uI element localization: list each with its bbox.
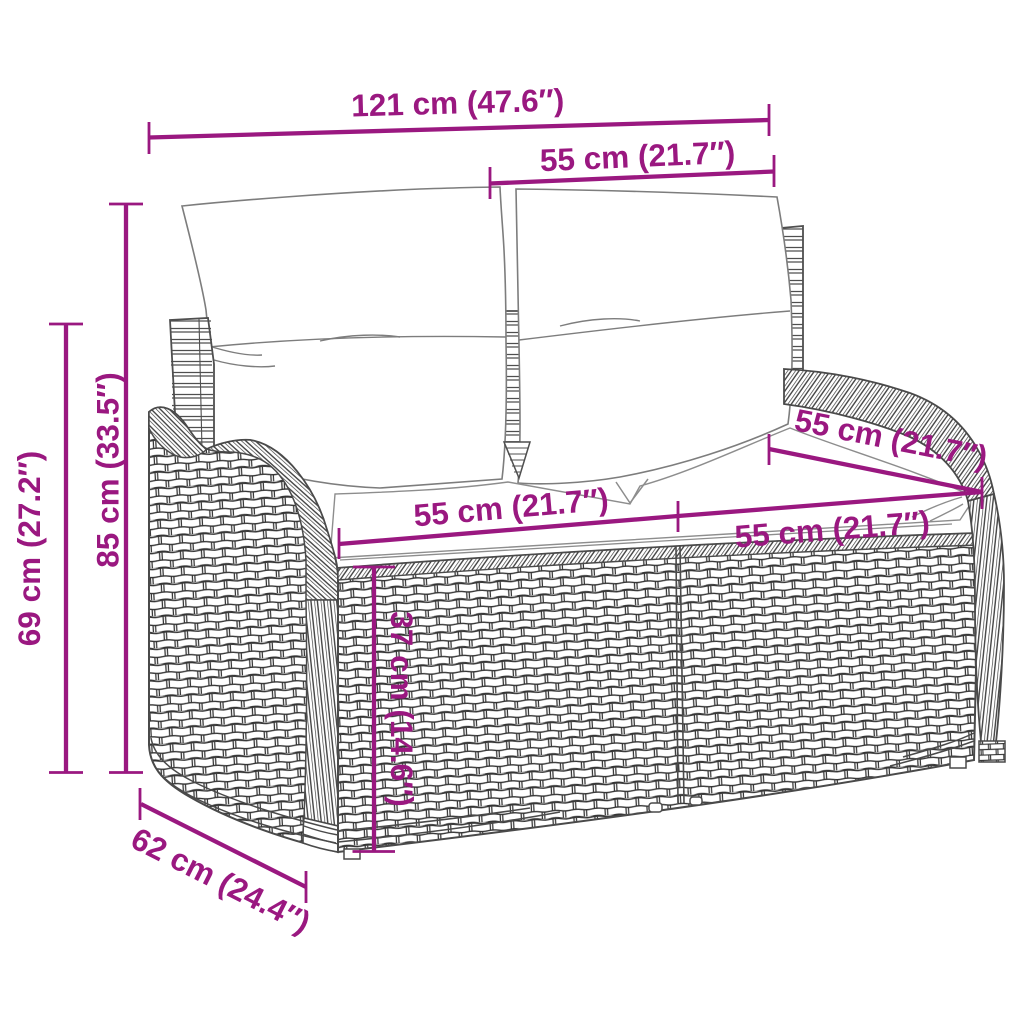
svg-text:121 cm (47.6″): 121 cm (47.6″) [351, 82, 565, 124]
svg-text:37 cm (14.6″): 37 cm (14.6″) [384, 611, 420, 806]
svg-text:85 cm (33.5″): 85 cm (33.5″) [90, 372, 126, 567]
svg-text:69 cm (27.2″): 69 cm (27.2″) [11, 451, 47, 646]
